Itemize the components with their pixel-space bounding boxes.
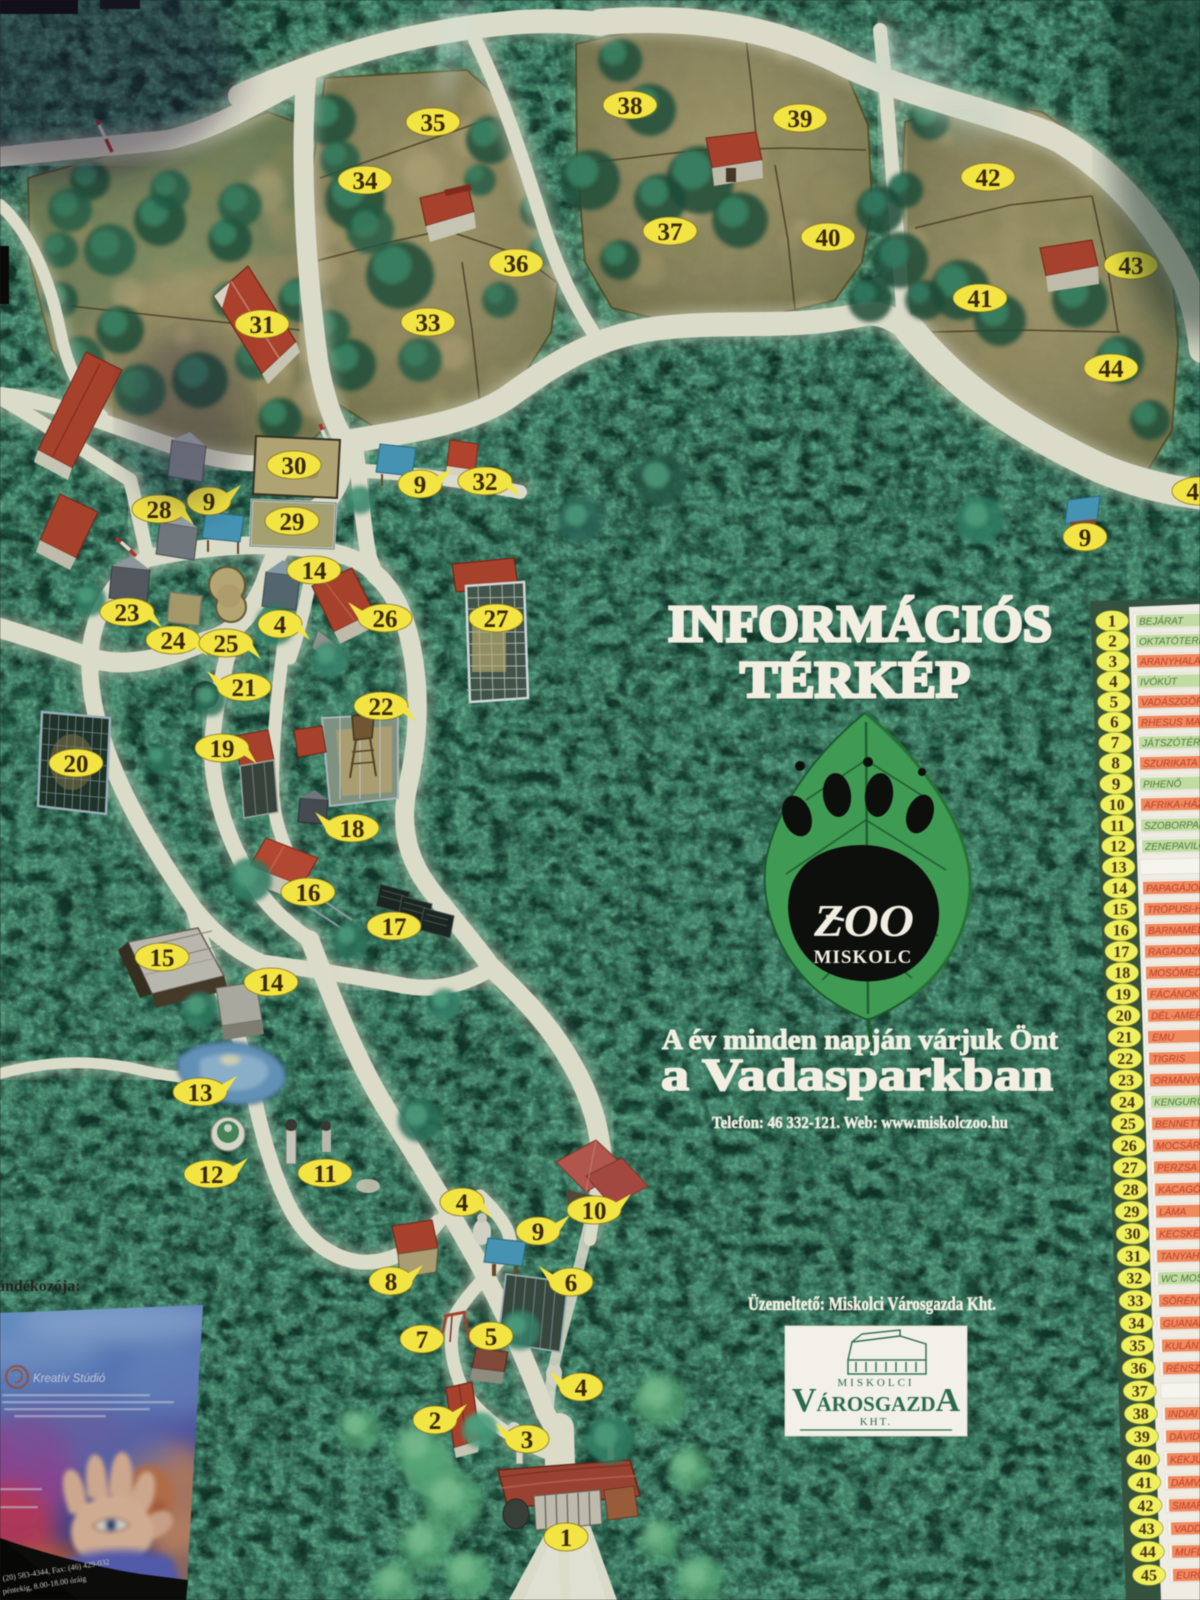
svg-text:38: 38	[618, 93, 643, 120]
svg-text:30: 30	[1125, 1226, 1141, 1243]
svg-text:KULÁN: KULÁN	[1165, 1339, 1199, 1353]
svg-text:41: 41	[968, 286, 993, 313]
svg-text:40: 40	[816, 225, 841, 252]
svg-text:PERZSA LE: PERZSA LE	[1157, 1162, 1200, 1174]
svg-text:26: 26	[373, 606, 398, 633]
svg-text:7: 7	[416, 1327, 429, 1354]
svg-text:25: 25	[214, 631, 239, 658]
svg-text:11: 11	[313, 1161, 337, 1188]
svg-text:IVÓKÚT: IVÓKÚT	[1140, 675, 1178, 689]
svg-text:FÁCÁNOK: FÁCÁNOK	[1150, 987, 1200, 1001]
svg-text:ARANYHALAS: ARANYHALAS	[1139, 656, 1200, 668]
svg-text:KÉKJUH: KÉKJUH	[1170, 1452, 1200, 1466]
svg-text:35: 35	[1130, 1338, 1146, 1355]
svg-text:15: 15	[150, 945, 175, 972]
svg-text:BEJÁRAT: BEJÁRAT	[1139, 614, 1184, 628]
svg-text:12: 12	[199, 1162, 224, 1189]
svg-text:KACAGÓ: KACAGÓ	[1158, 1182, 1200, 1196]
svg-text:22: 22	[369, 694, 394, 721]
svg-text:9: 9	[532, 1219, 545, 1246]
svg-text:44: 44	[1099, 356, 1125, 383]
svg-text:33: 33	[1128, 1293, 1144, 1310]
svg-text:1: 1	[560, 1525, 573, 1552]
svg-text:MUFLON: MUFLON	[1175, 1547, 1200, 1559]
svg-text:39: 39	[788, 106, 813, 133]
svg-text:39: 39	[1134, 1429, 1150, 1446]
svg-text:23: 23	[1118, 1073, 1134, 1090]
svg-text:INDIAI: INDIAI	[1168, 1409, 1198, 1421]
svg-text:6: 6	[1110, 713, 1119, 732]
svg-text:MISKOLC: MISKOLC	[814, 947, 913, 968]
svg-text:16: 16	[296, 880, 321, 907]
svg-text:17: 17	[382, 914, 407, 941]
svg-text:VADDIS: VADDIS	[1174, 1524, 1200, 1536]
svg-text:4: 4	[575, 1375, 588, 1402]
svg-text:SZURIKATA: SZURIKATA	[1143, 758, 1198, 770]
svg-text:42: 42	[976, 165, 1001, 192]
svg-text:13: 13	[1111, 860, 1127, 877]
svg-text:9: 9	[414, 472, 427, 499]
svg-text:15: 15	[1112, 902, 1128, 919]
svg-text:AFRIKA-HÁZ: AFRIKA-HÁZ	[1143, 797, 1200, 811]
svg-text:16: 16	[1113, 923, 1129, 940]
svg-text:24: 24	[161, 628, 187, 655]
svg-text:5: 5	[1110, 692, 1119, 711]
svg-text:TANYAH: TANYAH	[1160, 1251, 1200, 1263]
svg-text:LÁMA: LÁMA	[1159, 1205, 1187, 1219]
svg-text:22: 22	[1117, 1051, 1133, 1068]
svg-text:36: 36	[1131, 1361, 1147, 1378]
svg-text:SIMAFEJ: SIMAFEJ	[1172, 1500, 1200, 1512]
svg-text:DÁVID: DÁVID	[1169, 1430, 1200, 1444]
svg-text:MOCSÁRI: MOCSÁRI	[1156, 1138, 1200, 1152]
svg-text:BARNAMEDV: BARNAMEDV	[1148, 925, 1200, 937]
svg-text:20: 20	[64, 751, 89, 778]
svg-text:42: 42	[1137, 1498, 1153, 1515]
svg-text:7: 7	[1111, 733, 1120, 752]
svg-text:32: 32	[1126, 1271, 1142, 1288]
svg-text:11: 11	[1110, 818, 1125, 835]
svg-text:31: 31	[1125, 1248, 1141, 1265]
svg-text:JÁTSZÓTÉR: JÁTSZÓTÉR	[1141, 735, 1200, 749]
svg-text:45: 45	[1141, 1567, 1157, 1584]
svg-text:4: 4	[1109, 672, 1118, 691]
svg-text:14: 14	[302, 558, 328, 585]
svg-text:3: 3	[1109, 652, 1118, 671]
svg-text:24: 24	[1119, 1094, 1135, 1111]
svg-text:3: 3	[521, 1427, 534, 1454]
svg-text:26: 26	[1121, 1138, 1137, 1155]
svg-text:28: 28	[1123, 1182, 1139, 1199]
svg-text:27: 27	[484, 606, 509, 633]
svg-text:SZOBORPARK: SZOBORPARK	[1144, 820, 1200, 832]
svg-text:Telefon: 46 332-121. Web: www.: Telefon: 46 332-121. Web: www.miskolczoo…	[712, 1113, 1008, 1132]
svg-text:31: 31	[250, 312, 275, 339]
svg-text:EURÓPA: EURÓPA	[1176, 1568, 1200, 1582]
svg-text:38: 38	[1133, 1406, 1149, 1423]
svg-text:6: 6	[565, 1270, 578, 1297]
svg-text:19: 19	[210, 736, 235, 763]
svg-text:41: 41	[1136, 1475, 1152, 1492]
svg-text:35: 35	[421, 110, 446, 137]
svg-text:GUANAK: GUANAK	[1163, 1318, 1200, 1330]
svg-text:32: 32	[473, 469, 498, 496]
svg-text:WC MOS: WC MOS	[1161, 1273, 1200, 1285]
svg-text:MISKOLCI: MISKOLCI	[837, 1377, 914, 1389]
svg-text:17: 17	[1113, 944, 1129, 961]
svg-text:30: 30	[282, 453, 307, 480]
svg-text:37: 37	[658, 219, 683, 246]
svg-text:RHESUS MAJ: RHESUS MAJ	[1141, 717, 1200, 729]
svg-text:1: 1	[1108, 612, 1117, 631]
svg-text:27: 27	[1122, 1160, 1138, 1177]
svg-text:37: 37	[1132, 1383, 1148, 1400]
svg-text:2: 2	[429, 1408, 442, 1435]
svg-text:8: 8	[1111, 754, 1120, 773]
svg-text:13: 13	[188, 1080, 213, 1107]
svg-text:19: 19	[1115, 987, 1131, 1004]
svg-text:34: 34	[353, 168, 379, 195]
svg-text:EMU: EMU	[1152, 1032, 1175, 1043]
svg-text:12: 12	[1110, 839, 1126, 856]
svg-text:25: 25	[1120, 1116, 1136, 1133]
svg-text:23: 23	[115, 600, 140, 627]
svg-text:21: 21	[232, 675, 257, 702]
svg-text:9: 9	[1079, 525, 1092, 552]
svg-text:20: 20	[1116, 1008, 1132, 1025]
svg-text:ándékozója:: ándékozója:	[0, 1278, 81, 1295]
svg-text:5: 5	[485, 1324, 498, 1351]
svg-text:45: 45	[1187, 479, 1200, 506]
svg-text:4: 4	[274, 612, 287, 639]
svg-text:10: 10	[1109, 797, 1125, 814]
svg-text:ORMÁNYOS: ORMÁNYOS	[1153, 1073, 1200, 1087]
svg-text:KECSKÉK: KECSKÉK	[1159, 1227, 1200, 1241]
svg-text:18: 18	[1114, 965, 1130, 982]
svg-text:KENGURU: KENGURU	[1154, 1097, 1200, 1109]
svg-text:29: 29	[1124, 1204, 1140, 1221]
svg-text:TIGRIS: TIGRIS	[1152, 1054, 1186, 1066]
svg-text:40: 40	[1135, 1452, 1151, 1469]
svg-text:44: 44	[1140, 1544, 1156, 1561]
svg-text:9: 9	[1112, 774, 1121, 793]
svg-text:43: 43	[1139, 1521, 1155, 1538]
svg-text:34: 34	[1129, 1316, 1145, 1333]
svg-text:Üzemeltető: Miskolci Városgazd: Üzemeltető: Miskolci Városgazda Kht.	[748, 1294, 996, 1315]
svg-text:TÉRKÉP: TÉRKÉP	[740, 651, 970, 709]
svg-text:PAPAGÁJOK: PAPAGÁJOK	[1146, 881, 1200, 895]
svg-text:BENNETT: BENNETT	[1155, 1118, 1200, 1130]
svg-text:RÉNSZAR: RÉNSZAR	[1166, 1361, 1200, 1375]
svg-text:ZENEPAVILON: ZENEPAVILON	[1144, 841, 1200, 853]
svg-text:DÁMVAD: DÁMVAD	[1171, 1475, 1200, 1489]
svg-text:a Vadasparkban: a Vadasparkban	[661, 1049, 1053, 1100]
svg-text:INFORMÁCIÓS: INFORMÁCIÓS	[668, 595, 1052, 653]
svg-text:18: 18	[340, 816, 365, 843]
svg-text:4: 4	[456, 1190, 469, 1217]
svg-text:SÖRÉNYE: SÖRÉNYE	[1162, 1293, 1200, 1307]
svg-text:14: 14	[259, 970, 285, 997]
svg-text:8: 8	[385, 1269, 398, 1296]
svg-text:21: 21	[1117, 1029, 1133, 1046]
svg-text:36: 36	[504, 251, 529, 278]
svg-text:33: 33	[416, 310, 441, 337]
svg-text:2: 2	[1108, 632, 1117, 651]
svg-text:14: 14	[1111, 881, 1127, 898]
svg-text:10: 10	[582, 1198, 607, 1225]
svg-text:29: 29	[280, 509, 305, 536]
svg-text:ZOO: ZOO	[813, 895, 914, 946]
svg-text:KHT.: KHT.	[860, 1416, 893, 1428]
